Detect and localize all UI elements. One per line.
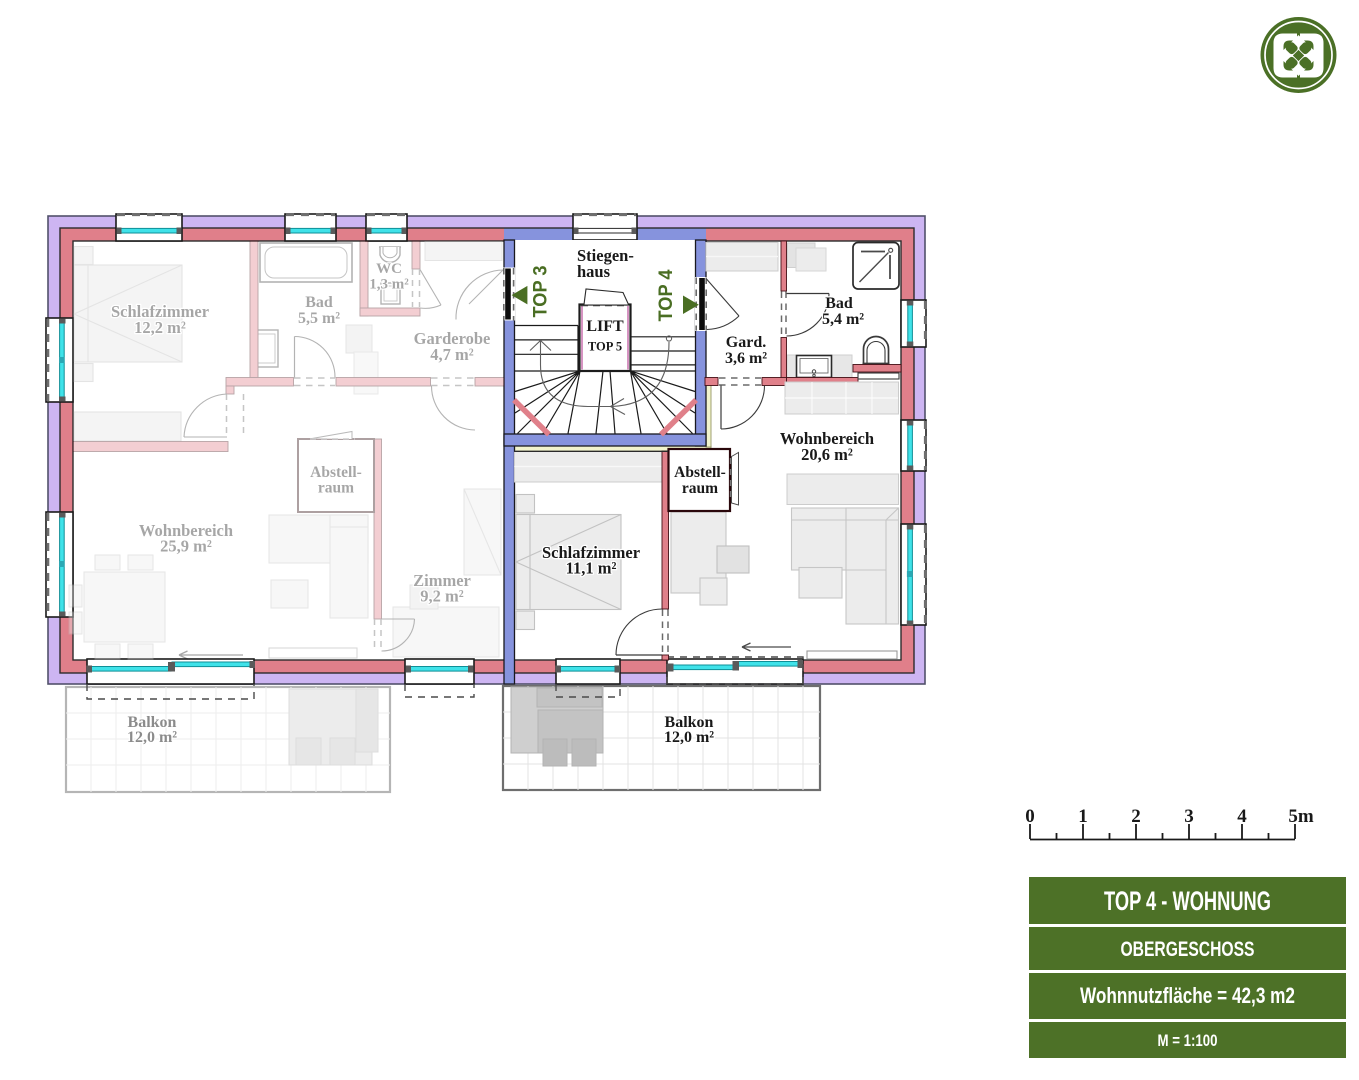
svg-text:Wohnnutzfläche = 42,3 m2: Wohnnutzfläche = 42,3 m2 bbox=[1080, 983, 1295, 1008]
svg-text:5,5 m²: 5,5 m² bbox=[298, 310, 340, 327]
svg-text:Gard.: Gard. bbox=[726, 334, 766, 351]
svg-text:TOP 4 - WOHNUNG: TOP 4 - WOHNUNG bbox=[1104, 886, 1271, 916]
svg-text:5,4 m²: 5,4 m² bbox=[822, 311, 864, 328]
svg-text:raum: raum bbox=[682, 480, 718, 497]
svg-text:5m: 5m bbox=[1288, 806, 1314, 827]
svg-text:OBERGESCHOSS: OBERGESCHOSS bbox=[1121, 937, 1255, 961]
svg-text:3: 3 bbox=[1184, 806, 1194, 827]
svg-text:Bad: Bad bbox=[305, 294, 333, 311]
svg-text:TOP 4: TOP 4 bbox=[656, 269, 677, 321]
svg-text:25,9 m²: 25,9 m² bbox=[160, 537, 212, 556]
svg-text:M = 1:100: M = 1:100 bbox=[1158, 1031, 1218, 1050]
svg-text:TOP 3: TOP 3 bbox=[531, 266, 552, 318]
svg-text:WC: WC bbox=[376, 261, 402, 277]
svg-text:TOP 5: TOP 5 bbox=[588, 340, 622, 354]
svg-text:12,2 m²: 12,2 m² bbox=[134, 318, 186, 337]
svg-text:11,1 m²: 11,1 m² bbox=[566, 559, 617, 578]
svg-text:Bad: Bad bbox=[825, 295, 853, 312]
svg-text:12,0 m²: 12,0 m² bbox=[127, 729, 177, 746]
svg-text:0: 0 bbox=[1025, 806, 1035, 827]
svg-text:20,6 m²: 20,6 m² bbox=[801, 445, 853, 464]
svg-text:LIFT: LIFT bbox=[586, 318, 624, 335]
svg-text:1: 1 bbox=[1078, 806, 1088, 827]
svg-text:4: 4 bbox=[1237, 806, 1247, 827]
svg-text:1,3 m²: 1,3 m² bbox=[369, 277, 409, 293]
svg-text:Abstell-: Abstell- bbox=[674, 464, 726, 481]
svg-text:Abstell-: Abstell- bbox=[310, 464, 362, 481]
svg-text:haus: haus bbox=[577, 262, 611, 281]
svg-text:9,2 m²: 9,2 m² bbox=[420, 587, 463, 606]
svg-text:12,0 m²: 12,0 m² bbox=[664, 729, 714, 746]
svg-text:4,7 m²: 4,7 m² bbox=[430, 345, 473, 364]
svg-text:3,6 m²: 3,6 m² bbox=[725, 350, 767, 367]
svg-text:2: 2 bbox=[1131, 806, 1141, 827]
svg-text:raum: raum bbox=[318, 480, 354, 497]
